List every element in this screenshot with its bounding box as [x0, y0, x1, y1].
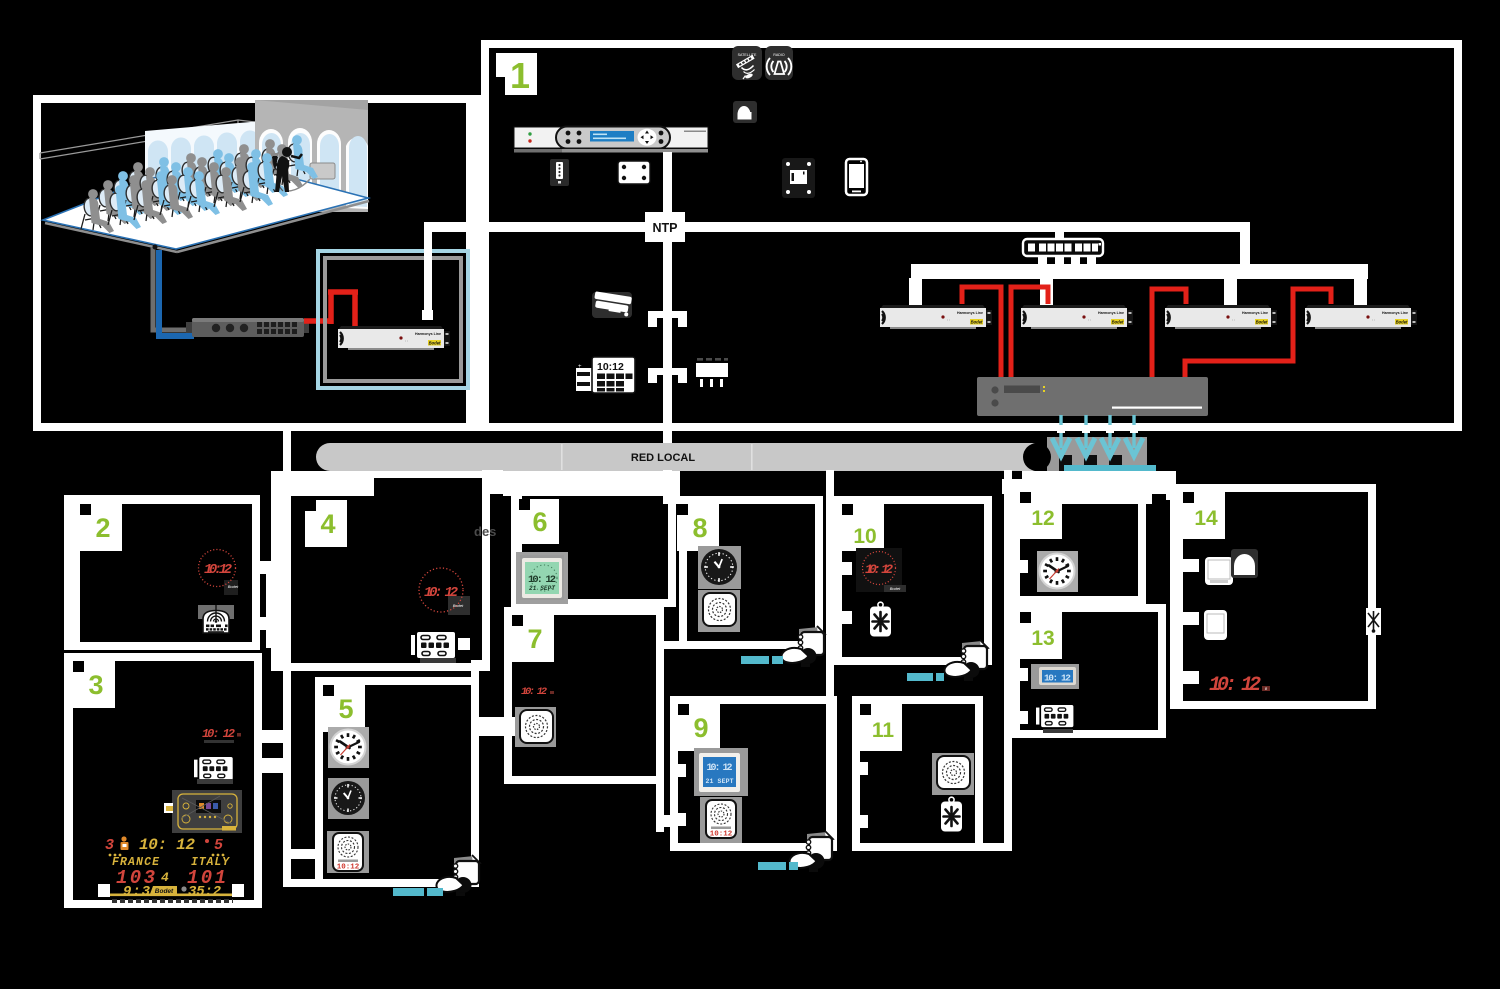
svg-text:35:2: 35:2 — [188, 884, 222, 900]
svg-text:2: 2 — [95, 513, 110, 543]
svg-text:10: 10 — [853, 525, 876, 548]
svg-text:1: 1 — [510, 55, 530, 96]
svg-text:11: 11 — [872, 719, 895, 742]
svg-text:10: 12: 10: 12 — [1044, 673, 1071, 684]
svg-text:des: des — [474, 524, 496, 539]
svg-text:10:12: 10:12 — [204, 562, 233, 578]
svg-text:10:12: 10:12 — [597, 361, 624, 373]
svg-text:9:3: 9:3 — [123, 884, 151, 900]
svg-text:10: 12: 10: 12 — [139, 836, 195, 854]
svg-text:10: 12: 10: 12 — [707, 763, 733, 774]
svg-text:RADIO: RADIO — [773, 53, 785, 57]
svg-text:9: 9 — [693, 713, 708, 743]
svg-text:SATELLITE: SATELLITE — [738, 53, 757, 57]
svg-text:10: 12: 10: 12 — [521, 686, 548, 698]
svg-text:Bodet: Bodet — [228, 584, 239, 589]
svg-text:RED LOCAL: RED LOCAL — [631, 452, 695, 464]
svg-text:21 SEPT: 21 SEPT — [529, 585, 555, 592]
svg-text:8: 8 — [692, 513, 707, 543]
svg-text:Bodet: Bodet — [890, 586, 901, 591]
svg-text:5: 5 — [214, 837, 223, 854]
svg-text:12: 12 — [1031, 507, 1054, 530]
svg-text:NTP: NTP — [653, 221, 678, 235]
svg-text:6: 6 — [532, 507, 547, 537]
svg-text:14: 14 — [1194, 507, 1218, 530]
svg-text:10: 12: 10: 12 — [865, 562, 893, 577]
svg-text:7: 7 — [527, 624, 542, 654]
svg-text:4: 4 — [161, 870, 169, 885]
svg-text:Bodet: Bodet — [453, 603, 464, 608]
svg-text:10: 12: 10: 12 — [1209, 674, 1261, 697]
svg-text:10: 12: 10: 12 — [424, 585, 459, 601]
svg-text:+: + — [578, 364, 582, 370]
svg-text:3: 3 — [105, 837, 114, 854]
svg-text:13: 13 — [1031, 627, 1054, 650]
svg-text:5: 5 — [338, 694, 353, 724]
svg-text:4: 4 — [320, 509, 335, 539]
svg-text:21 SEPT: 21 SEPT — [706, 778, 734, 785]
svg-text:10: 12: 10: 12 — [202, 727, 235, 741]
svg-text:3: 3 — [88, 670, 103, 700]
